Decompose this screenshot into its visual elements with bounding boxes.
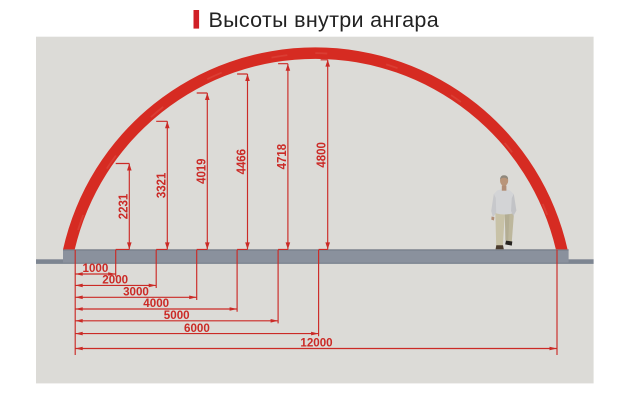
svg-text:4466: 4466	[234, 149, 249, 175]
svg-text:3321: 3321	[154, 173, 169, 199]
svg-text:5000: 5000	[164, 309, 190, 322]
svg-text:4718: 4718	[274, 144, 289, 170]
svg-text:Высоты внутри ангара: Высоты внутри ангара	[209, 8, 439, 32]
svg-text:12000: 12000	[300, 337, 332, 350]
svg-text:4800: 4800	[314, 142, 329, 168]
svg-text:2231: 2231	[116, 194, 131, 220]
svg-text:4019: 4019	[194, 158, 209, 184]
svg-text:6000: 6000	[184, 322, 210, 335]
